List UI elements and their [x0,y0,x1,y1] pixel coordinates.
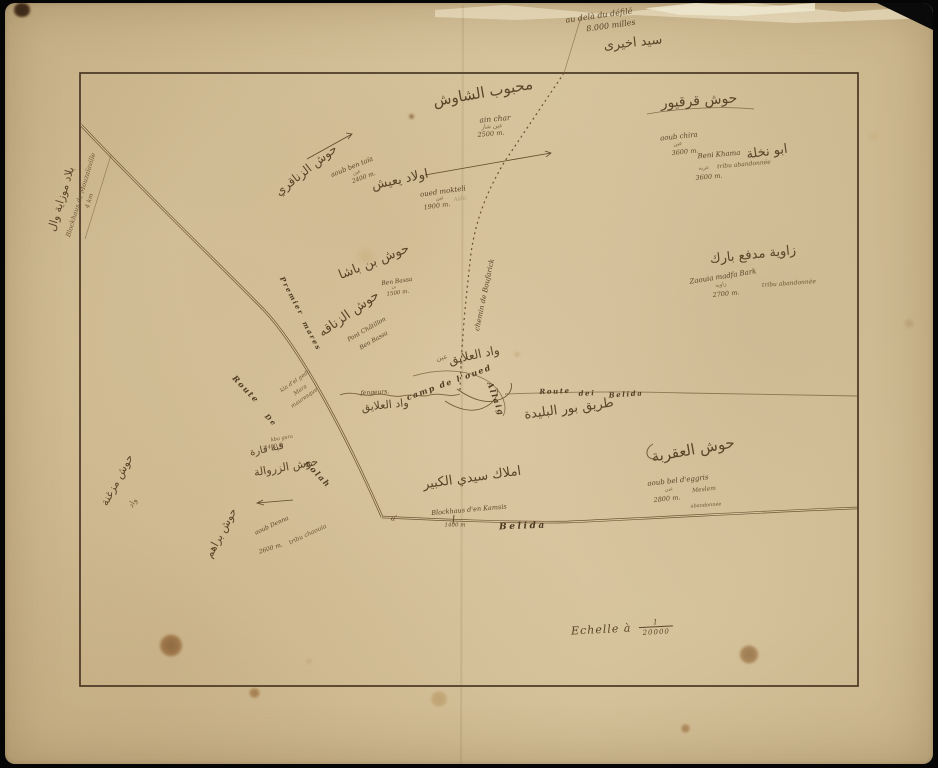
stain [513,351,521,358]
map-label: عربه [698,166,709,172]
stain [305,658,313,665]
map-label: 1400 m [445,523,466,529]
paper-sheet: au delà du défilé8.000 millesسيد اخيرىبل… [5,3,933,764]
stain-corner [13,3,31,17]
map-label: عين [665,487,674,493]
map-linework-svg [5,3,933,764]
scale-label: Echelle à [571,622,632,638]
chemin-boufarick-dotted [460,73,564,391]
stain [353,246,379,266]
map-label: Route [539,387,570,395]
fold-crease [461,5,463,764]
map-scan-page: au delà du défilé8.000 millesسيد اخيرىبل… [0,0,938,768]
pointer-line-3 [257,500,293,505]
stain [867,131,881,143]
map-label: dei [578,389,595,397]
map-label: a' [391,516,397,523]
stain [903,318,915,329]
scale-fraction: 120000 [639,617,673,637]
stain [409,114,414,119]
stain [681,724,690,733]
map-label: Belida [499,522,547,533]
chemin-boufarick-extension [564,17,581,73]
scale-denominator: 20000 [639,625,673,637]
stain [249,688,260,698]
pointer-line-2 [425,151,551,175]
stain [430,691,448,707]
map-label: Belida [608,389,643,398]
stain [739,645,759,664]
stain [159,634,183,657]
